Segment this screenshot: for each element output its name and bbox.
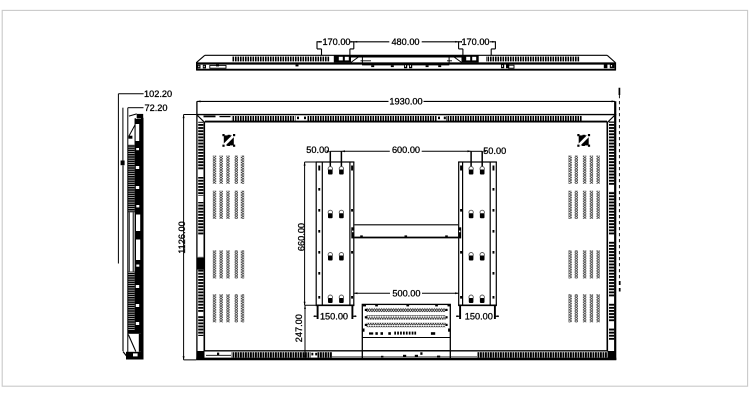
- svg-text:660.00: 660.00: [297, 223, 307, 251]
- svg-text:102.20: 102.20: [144, 89, 172, 99]
- svg-text:72.20: 72.20: [145, 103, 168, 113]
- svg-text:600.00: 600.00: [392, 145, 420, 155]
- svg-text:1126.00: 1126.00: [177, 221, 187, 254]
- svg-text:247.00: 247.00: [294, 314, 304, 342]
- svg-text:150.00: 150.00: [320, 312, 348, 322]
- svg-text:50.00: 50.00: [306, 145, 329, 155]
- svg-text:500.00: 500.00: [392, 289, 420, 299]
- svg-text:170.00: 170.00: [322, 37, 350, 47]
- svg-text:170.00: 170.00: [461, 37, 489, 47]
- svg-text:1930.00: 1930.00: [389, 96, 422, 106]
- svg-text:480.00: 480.00: [391, 37, 419, 47]
- svg-text:150.00: 150.00: [465, 312, 493, 322]
- svg-text:50.00: 50.00: [483, 146, 506, 156]
